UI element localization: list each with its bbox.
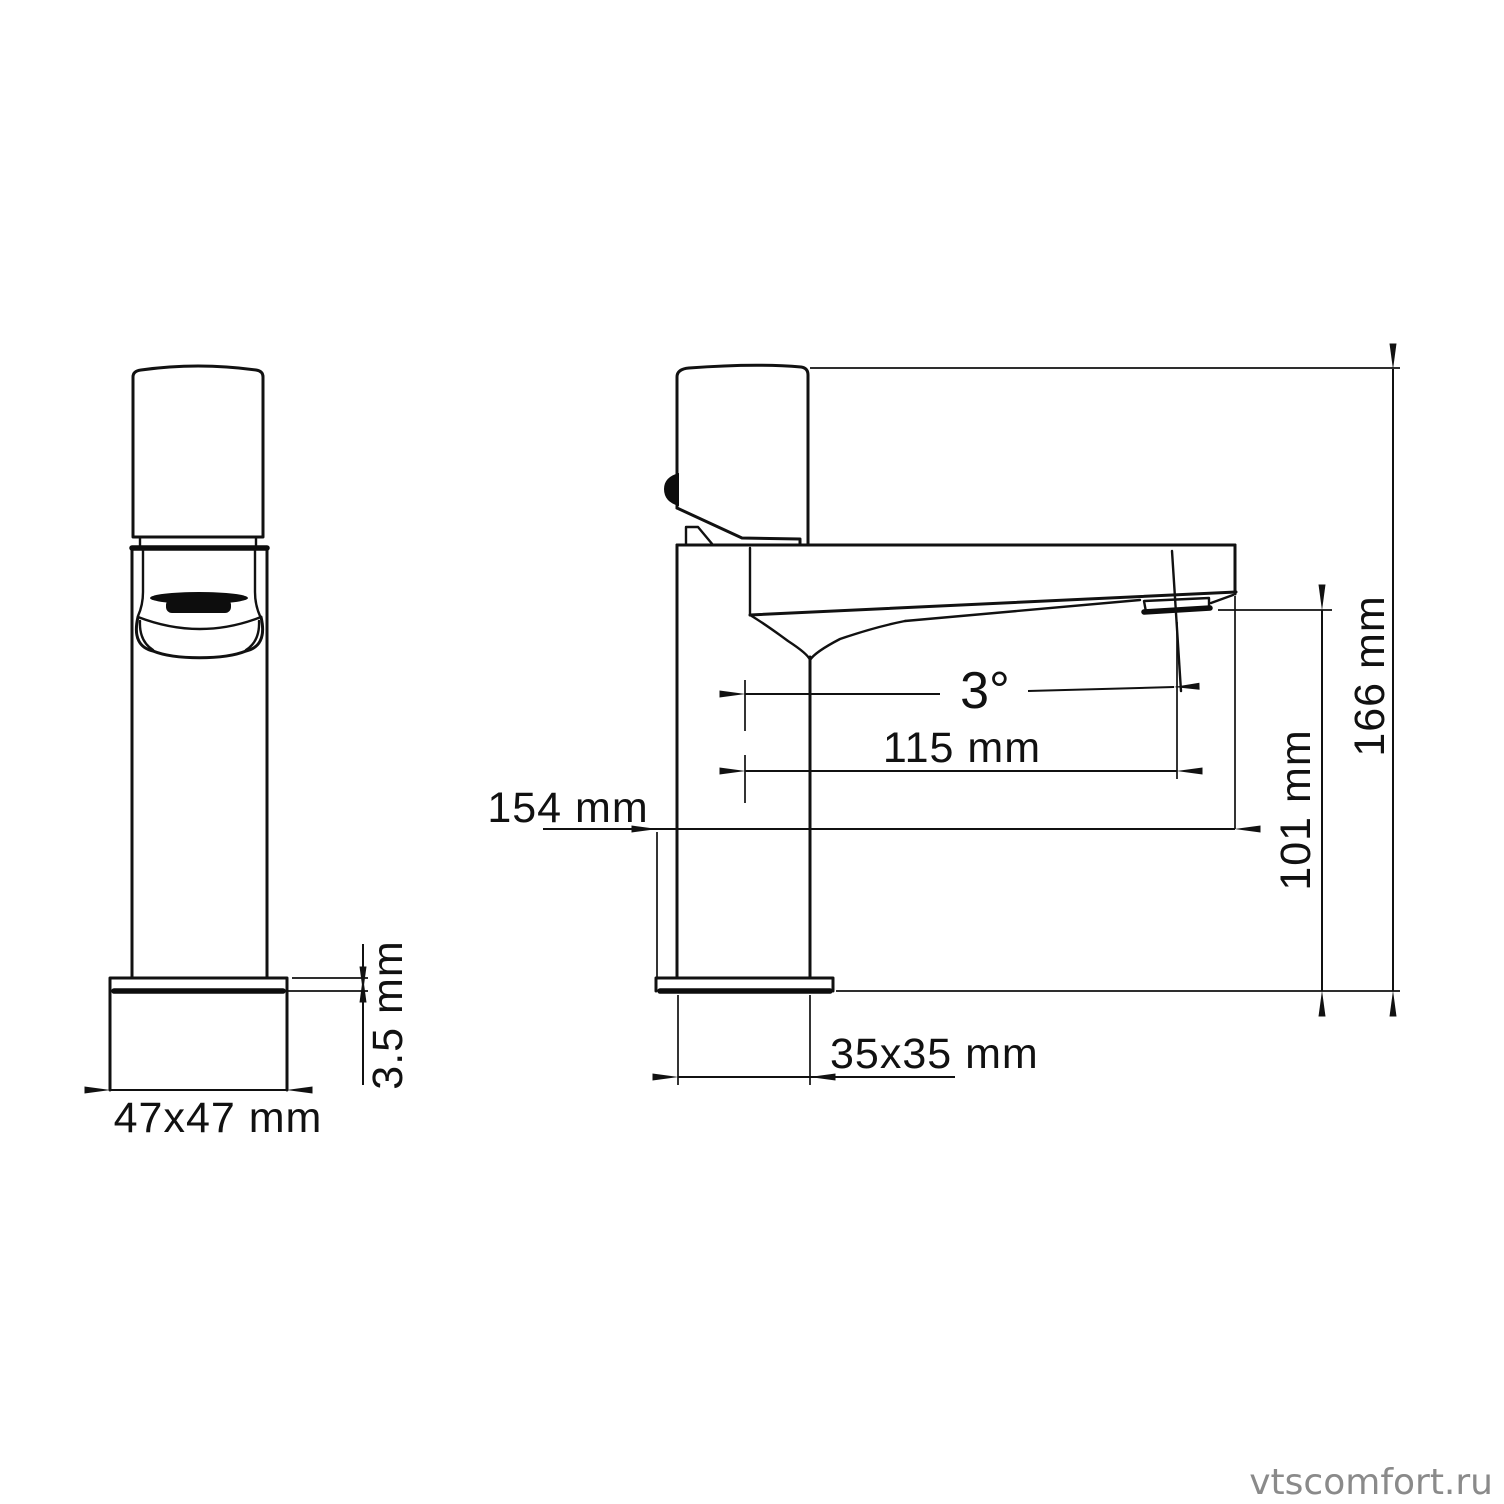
front-plate-ext-lines [288,978,368,991]
side-handle-pivot [686,527,713,545]
side-view [656,365,1236,991]
side-spout-funnel [750,615,905,660]
front-base-outline [110,978,287,1090]
spout-reach-label: 115 mm [883,724,1041,772]
spout-height-label: 101 mm [1272,729,1320,890]
base-size-label: 35x35 mm [830,1030,1039,1078]
front-handle-outline [133,366,263,537]
side-view-dimensions: 3° 115 mm 154 mm 101 mm 166 mm 35x35 mm [487,368,1400,1085]
front-spout-cup-pockets [140,621,259,650]
faucet-dimension-drawing: 47x47 mm 3.5 mm 3° [0,0,1504,1504]
front-neck [140,538,256,546]
front-aerator-slot [166,599,231,613]
front-view [110,366,287,1090]
total-depth-ext-lines [657,596,1235,977]
total-height-ext-lines [810,368,1400,991]
total-height-label: 166 mm [1346,595,1394,756]
side-handle-button [664,473,679,506]
total-depth-label: 154 mm [487,784,648,832]
front-view-dimensions: 47x47 mm 3.5 mm [110,940,412,1142]
front-plate-thickness-label: 3.5 mm [364,940,412,1089]
spout-angle-label: 3° [960,662,1010,720]
watermark-text: vtscomfort.ru [1249,1462,1493,1503]
front-base-width-label: 47x47 mm [114,1094,323,1142]
base-size-ext-lines [678,995,810,1085]
spout-angle-dim-right [1028,687,1174,691]
front-spout-cup-upper [138,617,261,629]
